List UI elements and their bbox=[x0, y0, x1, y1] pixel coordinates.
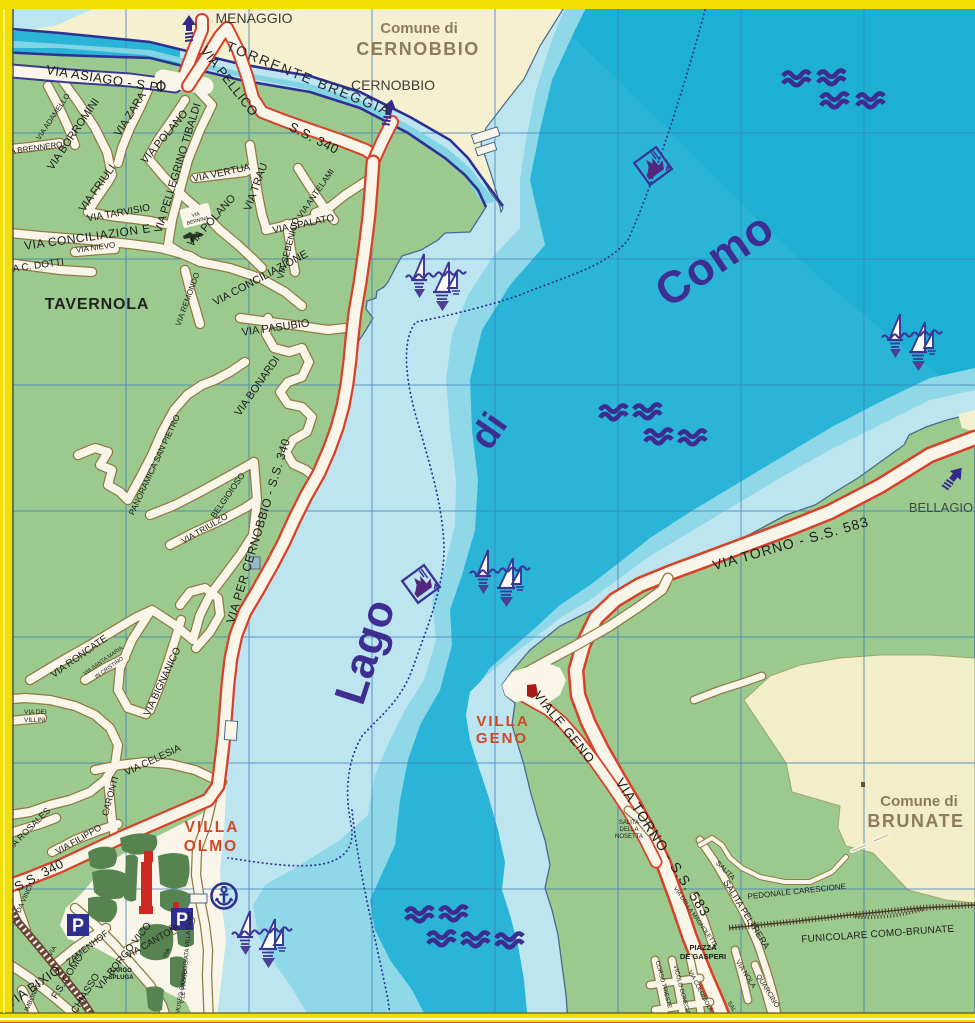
svg-text:NOSETTA: NOSETTA bbox=[615, 834, 643, 840]
svg-text:P: P bbox=[72, 916, 84, 936]
svg-text:CERNOBBIO: CERNOBBIO bbox=[356, 39, 480, 59]
svg-text:DE GASPERI: DE GASPERI bbox=[680, 952, 726, 961]
svg-text:LARGO: LARGO bbox=[110, 968, 132, 974]
svg-text:GENO: GENO bbox=[476, 730, 528, 747]
svg-text:CERNOBBIO: CERNOBBIO bbox=[351, 77, 435, 93]
svg-text:SPLUGA: SPLUGA bbox=[108, 975, 134, 981]
svg-text:BRUNATE: BRUNATE bbox=[867, 811, 964, 831]
svg-text:BELLAGIO: BELLAGIO bbox=[909, 500, 973, 515]
svg-text:Comune di: Comune di bbox=[380, 20, 458, 37]
svg-text:MENAGGIO: MENAGGIO bbox=[215, 10, 292, 26]
svg-text:OLMO: OLMO bbox=[184, 838, 239, 855]
svg-text:VIA DEI: VIA DEI bbox=[24, 709, 47, 716]
svg-text:VILLA: VILLA bbox=[476, 713, 529, 730]
svg-text:VILLINI: VILLINI bbox=[24, 717, 46, 724]
svg-text:VILLA: VILLA bbox=[185, 819, 240, 836]
svg-text:TAVERNOLA: TAVERNOLA bbox=[45, 296, 149, 313]
svg-text:DELLA: DELLA bbox=[619, 827, 638, 833]
svg-text:SALITA: SALITA bbox=[619, 820, 639, 826]
svg-text:Comune di: Comune di bbox=[880, 793, 958, 810]
